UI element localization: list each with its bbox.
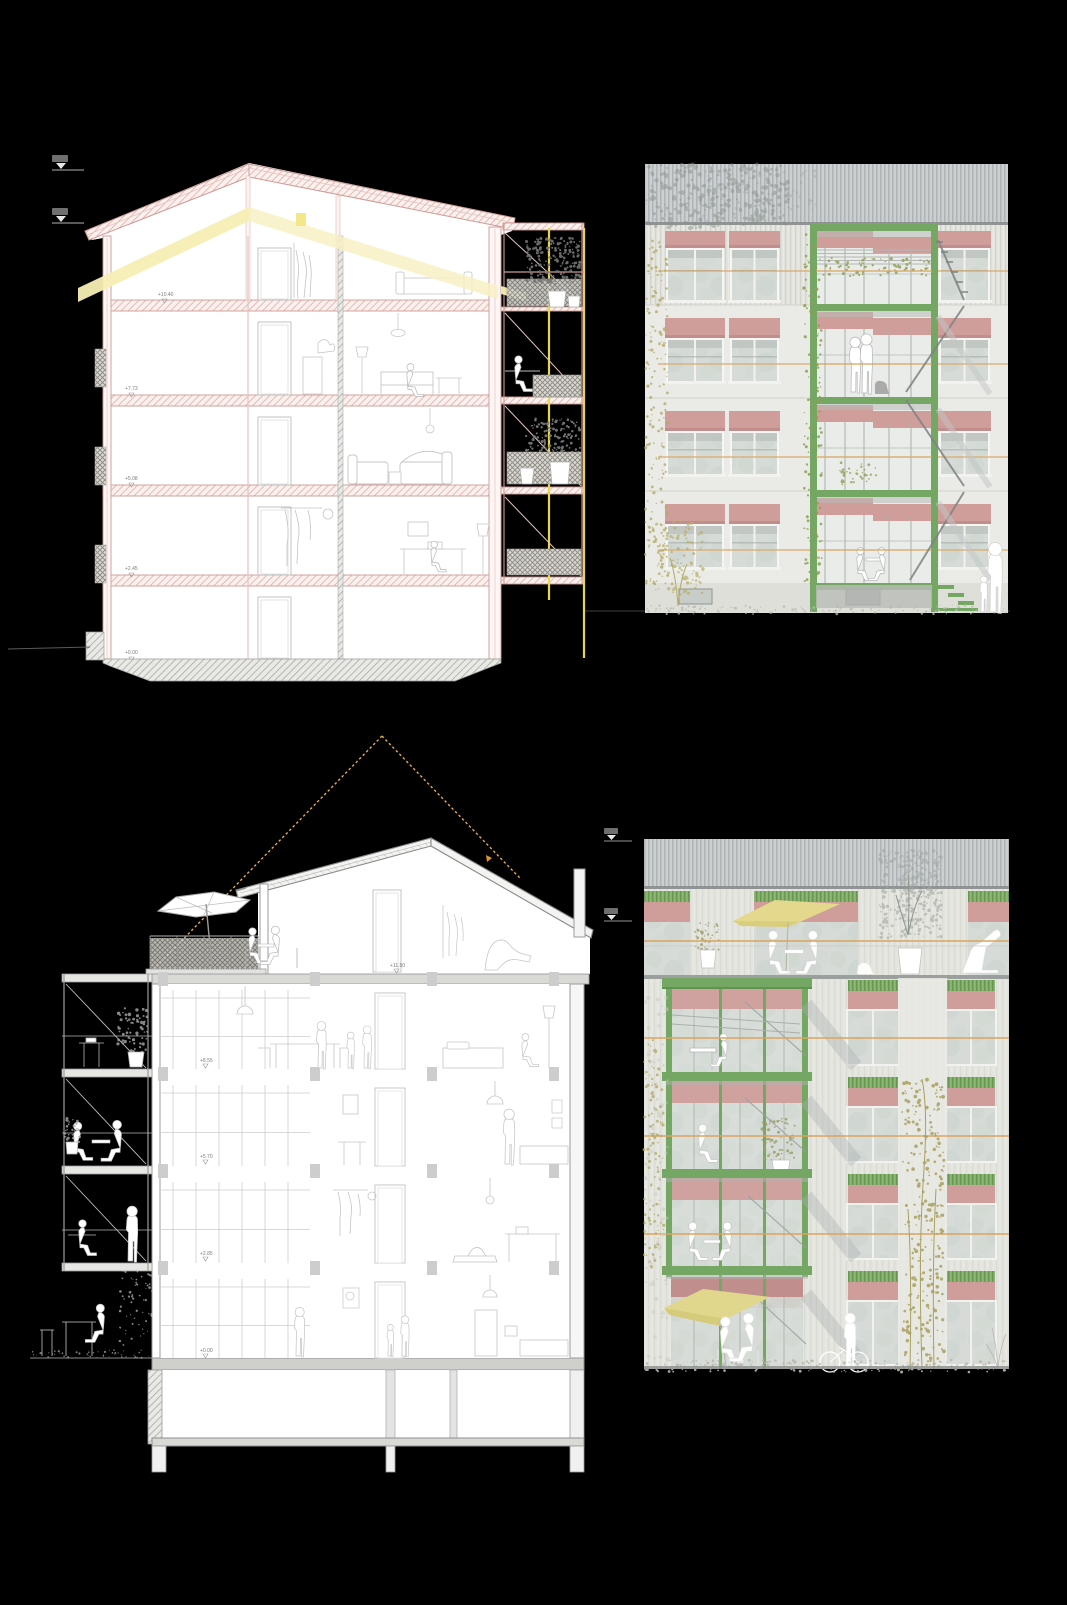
- svg-text:+0.00: +0.00: [125, 650, 138, 656]
- svg-text:+5.70: +5.70: [200, 1154, 213, 1160]
- svg-text:+10.40: +10.40: [158, 292, 174, 298]
- svg-text:+2.85: +2.85: [200, 1251, 213, 1257]
- svg-text:+11.50: +11.50: [390, 963, 405, 969]
- svg-text:+7.73: +7.73: [125, 386, 138, 392]
- svg-text:+5.08: +5.08: [125, 476, 138, 482]
- svg-text:+8.55: +8.55: [200, 1058, 213, 1064]
- svg-text:+0.00: +0.00: [200, 1348, 213, 1354]
- svg-text:+2.45: +2.45: [125, 566, 138, 572]
